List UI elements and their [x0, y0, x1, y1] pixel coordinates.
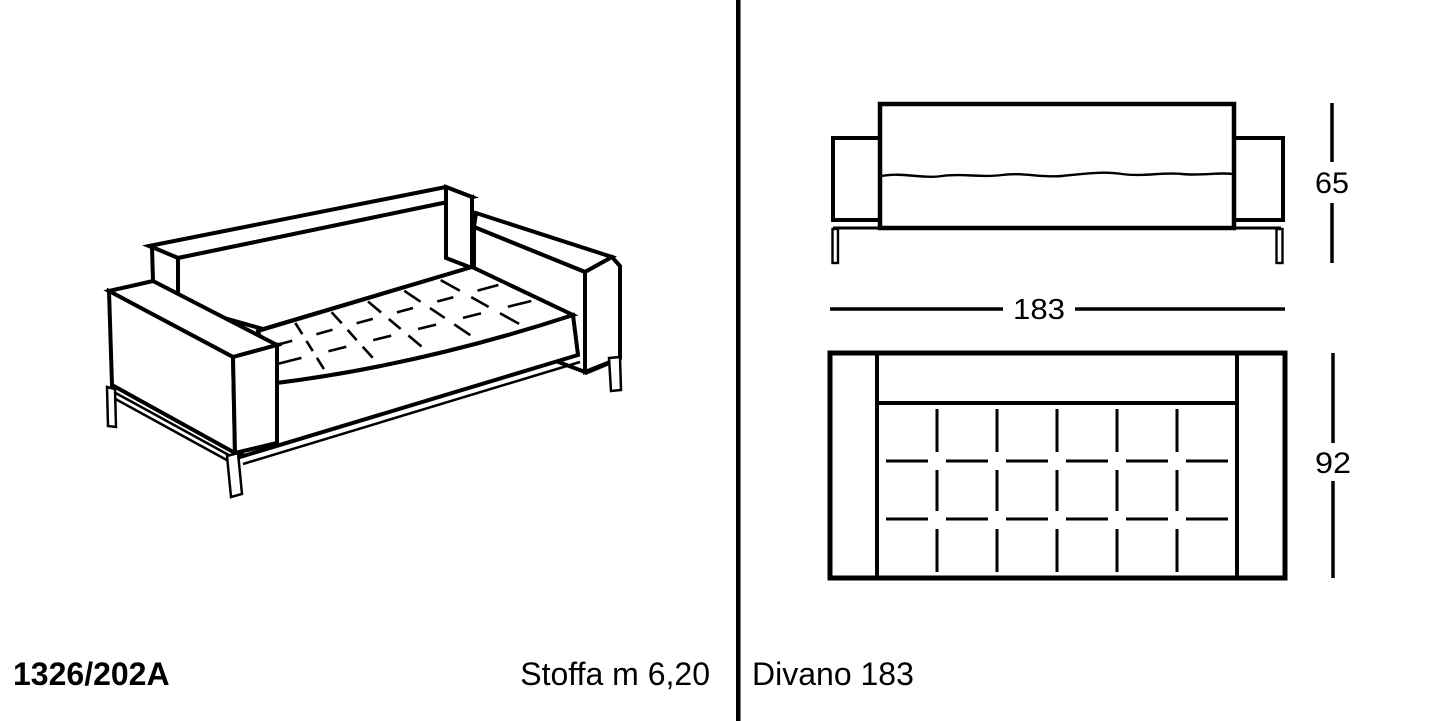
plan-quilt-grid [886, 409, 1228, 572]
elevation-leg-right [1277, 229, 1283, 263]
elevation-backrest-rect [880, 104, 1234, 228]
width-dimension-label: 183 [1013, 294, 1065, 326]
width-dimension: 183 [830, 294, 1285, 326]
catalog-spec-page: 65 183 92 1326/202A Stoffa m 6,20 Divano… [0, 0, 1455, 721]
elevation-left-armrest-rect [833, 138, 880, 220]
footer-model-code: 1326/202A [13, 656, 170, 693]
panel-divider-line [736, 0, 741, 721]
height-dimension-label: 65 [1315, 167, 1349, 200]
footer-fabric-label: Stoffa m 6,20 [360, 656, 710, 693]
depth-dimension-label: 92 [1315, 447, 1351, 480]
footer-product-label: Divano 183 [752, 656, 914, 693]
elevation-leg-left [833, 229, 839, 263]
front-elevation-view [833, 104, 1284, 263]
plan-view [830, 353, 1285, 578]
elevation-seat-seam-wavy-line [882, 173, 1232, 177]
height-dimension: 65 [1315, 103, 1349, 263]
elevation-right-armrest-rect [1234, 138, 1283, 220]
sofa-orthographic-views: 65 183 92 [0, 0, 1455, 721]
depth-dimension: 92 [1315, 353, 1351, 578]
